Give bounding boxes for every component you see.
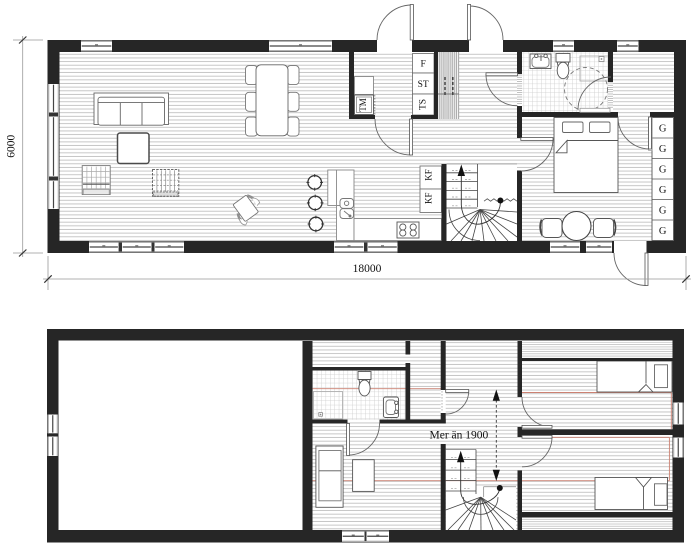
svg-text:6000: 6000: [6, 135, 18, 158]
svg-text:G: G: [659, 124, 667, 135]
svg-text:Mer än 1900: Mer än 1900: [430, 430, 489, 442]
svg-text:G: G: [659, 206, 667, 217]
svg-text:KF: KF: [424, 169, 434, 181]
svg-text:G: G: [659, 185, 667, 196]
svg-text:TS: TS: [418, 99, 428, 110]
svg-text:G: G: [659, 165, 667, 176]
svg-text:F: F: [421, 60, 426, 70]
svg-text:TM: TM: [358, 98, 368, 112]
svg-text:ST: ST: [418, 80, 429, 90]
svg-text:G: G: [659, 144, 667, 155]
svg-text:18000: 18000: [353, 263, 382, 275]
svg-text:G: G: [659, 226, 667, 237]
svg-text:KF: KF: [424, 192, 434, 204]
